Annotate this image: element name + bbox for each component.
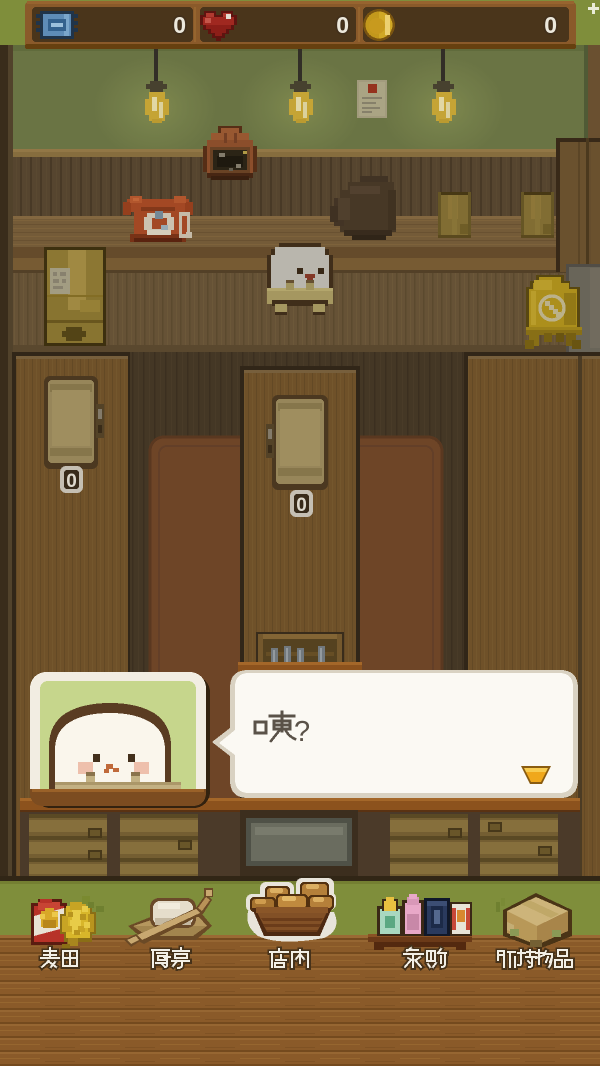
svg-text:0: 0 (173, 12, 186, 38)
svg-text:?: ? (294, 716, 310, 748)
svg-text:0: 0 (336, 12, 349, 38)
svg-text:0: 0 (544, 12, 557, 38)
